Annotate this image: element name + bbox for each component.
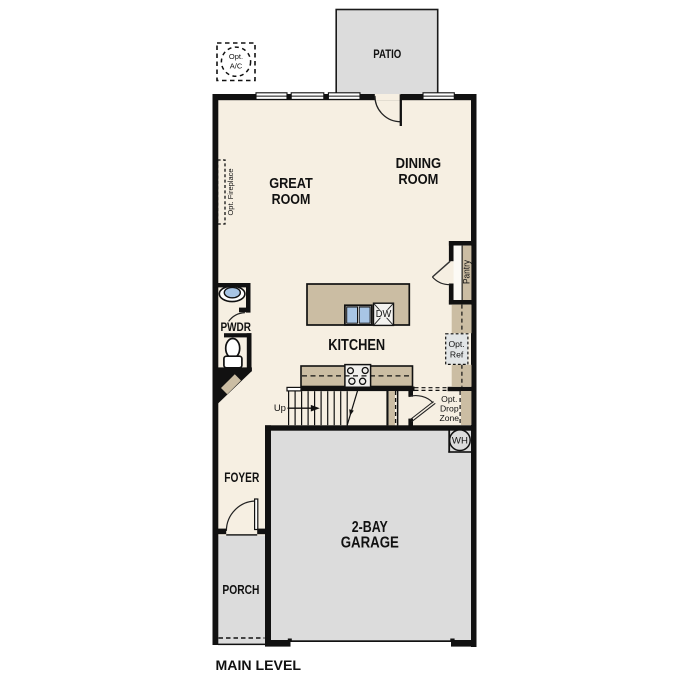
svg-text:Opt.: Opt.: [441, 394, 457, 404]
svg-text:Opt.: Opt.: [229, 52, 243, 61]
svg-text:PWDR: PWDR: [220, 322, 251, 334]
svg-text:MAIN LEVEL: MAIN LEVEL: [216, 657, 302, 673]
svg-text:DINING: DINING: [396, 156, 442, 172]
svg-text:A/C: A/C: [230, 62, 243, 71]
svg-text:ROOM: ROOM: [272, 192, 311, 208]
svg-text:KITCHEN: KITCHEN: [328, 337, 385, 354]
svg-text:2-BAY: 2-BAY: [352, 519, 389, 536]
svg-text:WH: WH: [452, 436, 468, 447]
svg-text:ROOM: ROOM: [398, 172, 438, 188]
svg-text:Ref: Ref: [450, 350, 464, 360]
svg-text:Zone: Zone: [440, 413, 460, 423]
svg-text:GREAT: GREAT: [269, 176, 313, 192]
svg-text:GARAGE: GARAGE: [341, 535, 399, 552]
svg-text:FOYER: FOYER: [224, 470, 259, 485]
svg-text:Up: Up: [274, 403, 286, 414]
svg-text:Opt.: Opt.: [448, 339, 464, 349]
svg-text:PATIO: PATIO: [373, 47, 401, 61]
svg-text:DW: DW: [376, 309, 392, 320]
svg-text:PORCH: PORCH: [222, 583, 259, 597]
svg-text:Opt. Fireplace: Opt. Fireplace: [226, 168, 235, 215]
svg-text:Drop: Drop: [440, 404, 459, 414]
svg-text:Pantry: Pantry: [462, 260, 472, 284]
